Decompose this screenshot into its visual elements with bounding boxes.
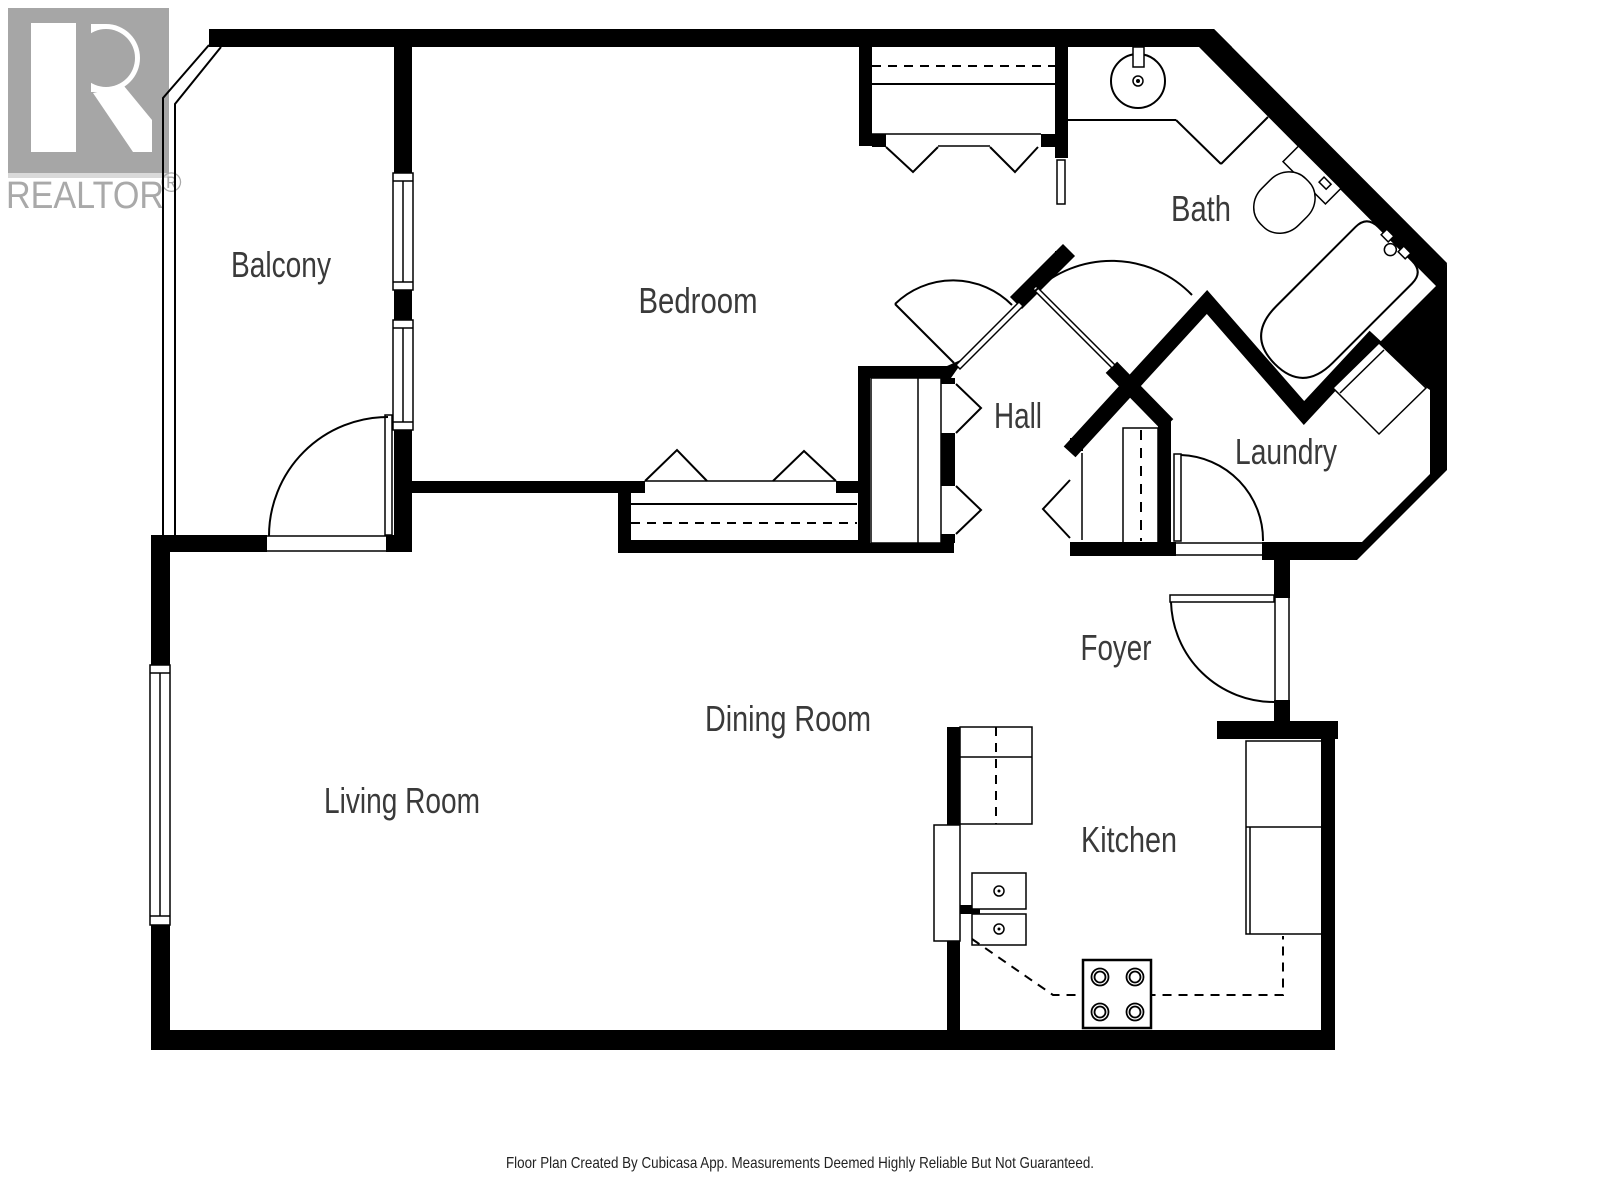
- svg-text:Floor Plan Created By Cubicasa: Floor Plan Created By Cubicasa App. Meas…: [506, 1155, 1094, 1172]
- svg-text:Living Room: Living Room: [324, 780, 480, 821]
- svg-text:Laundry: Laundry: [1235, 431, 1337, 472]
- svg-text:®: ®: [161, 167, 182, 198]
- svg-text:Balcony: Balcony: [231, 244, 331, 285]
- svg-text:Hall: Hall: [994, 395, 1042, 436]
- svg-text:Foyer: Foyer: [1081, 627, 1152, 668]
- svg-text:Bedroom: Bedroom: [639, 280, 758, 321]
- svg-text:Kitchen: Kitchen: [1081, 819, 1177, 860]
- svg-text:Bath: Bath: [1171, 188, 1231, 229]
- svg-text:REALTOR: REALTOR: [6, 175, 164, 217]
- svg-text:Dining Room: Dining Room: [705, 698, 871, 739]
